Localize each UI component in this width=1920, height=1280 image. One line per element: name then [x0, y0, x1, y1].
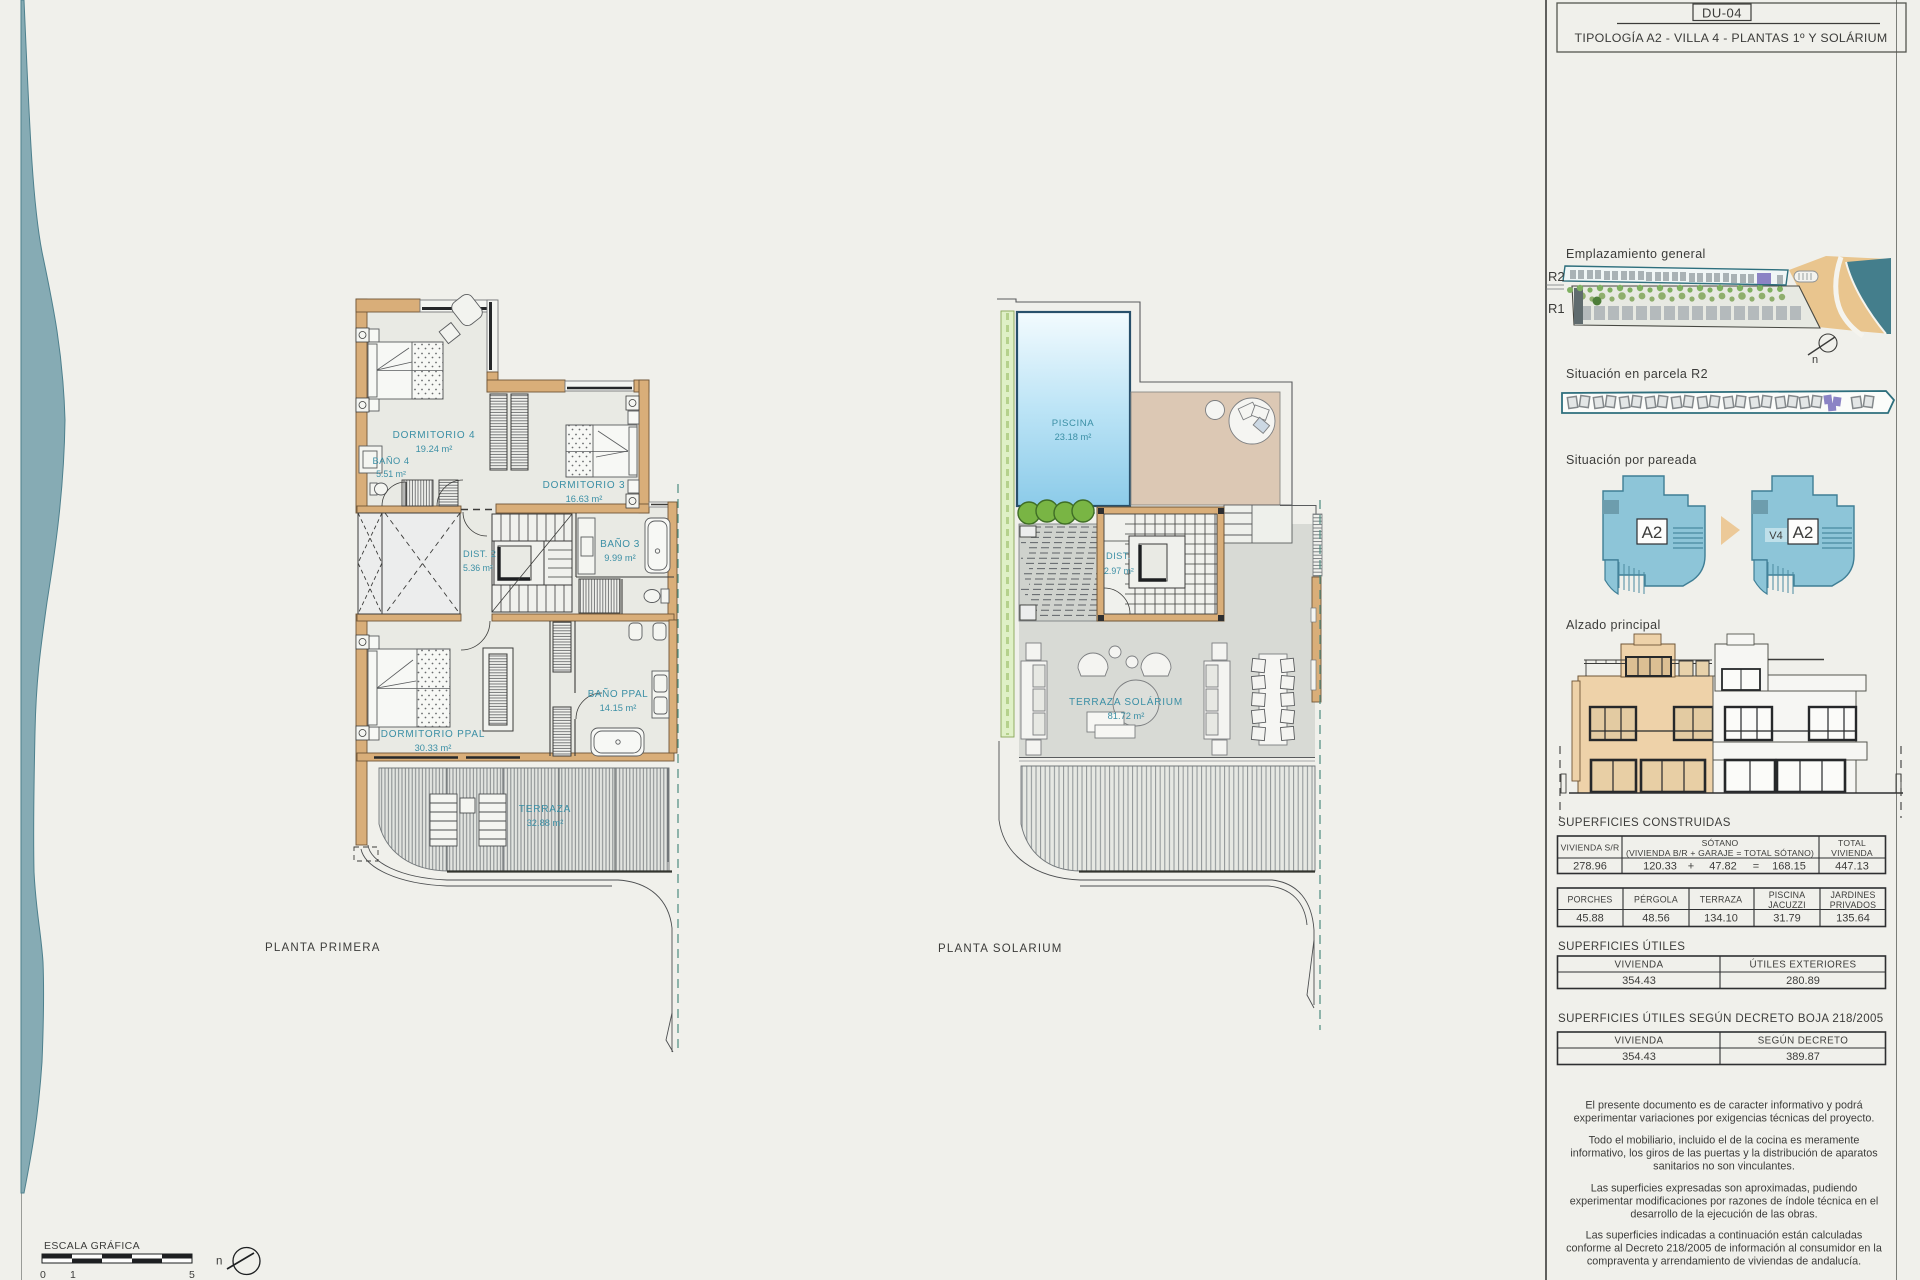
svg-text:5: 5	[189, 1269, 195, 1280]
svg-text:120.33: 120.33	[1643, 861, 1677, 873]
svg-text:PISCINA: PISCINA	[1052, 418, 1095, 429]
svg-text:16.63 m²: 16.63 m²	[566, 494, 603, 504]
svg-text:PLANTA SOLARIUM: PLANTA SOLARIUM	[938, 943, 1063, 955]
svg-text:SUPERFICIES ÚTILES SEGÚN DECRE: SUPERFICIES ÚTILES SEGÚN DECRETO BOJA 21…	[1558, 1012, 1884, 1025]
svg-text:5.51 m²: 5.51 m²	[376, 469, 406, 479]
svg-text:experimentar variaciones por e: experimentar variaciones por exigencias …	[1574, 1113, 1875, 1125]
svg-text:81.72 m²: 81.72 m²	[1108, 711, 1145, 721]
svg-text:DORMITORIO PPAL: DORMITORIO PPAL	[381, 729, 485, 740]
svg-text:48.56: 48.56	[1642, 913, 1670, 925]
svg-text:DU-04: DU-04	[1702, 6, 1742, 21]
svg-text:BAÑO PPAL: BAÑO PPAL	[588, 687, 648, 700]
svg-text:280.89: 280.89	[1786, 975, 1820, 987]
svg-text:BAÑO 4: BAÑO 4	[372, 456, 409, 466]
svg-text:Todo el mobiliario, incluido e: Todo el mobiliario, incluido el de la co…	[1589, 1135, 1860, 1147]
svg-text:Emplazamiento general: Emplazamiento general	[1566, 247, 1706, 261]
svg-text:45.88: 45.88	[1576, 913, 1604, 925]
svg-text:conforme al Decreto 218/2005 d: conforme al Decreto 218/2005 de informac…	[1566, 1243, 1882, 1255]
svg-text:experimentar modificaciones po: experimentar modificaciones por razones …	[1570, 1196, 1879, 1208]
svg-text:354.43: 354.43	[1622, 975, 1656, 987]
svg-text:+: +	[1688, 861, 1694, 873]
svg-text:PISCINA: PISCINA	[1769, 890, 1806, 900]
svg-text:TIPOLOGÍA A2 - VILLA 4 - PLANT: TIPOLOGÍA A2 - VILLA 4 - PLANTAS 1º Y SO…	[1574, 30, 1887, 45]
svg-text:447.13: 447.13	[1835, 861, 1869, 873]
svg-text:n: n	[216, 1256, 222, 1268]
svg-text:TERRAZA SOLÁRIUM: TERRAZA SOLÁRIUM	[1069, 695, 1183, 708]
svg-text:47.82: 47.82	[1709, 861, 1737, 873]
svg-text:n: n	[1812, 354, 1818, 366]
svg-text:2.97 m²: 2.97 m²	[1104, 566, 1134, 576]
svg-text:El presente documento es de ca: El presente documento es de caracter inf…	[1585, 1100, 1862, 1112]
svg-text:389.87: 389.87	[1786, 1051, 1820, 1063]
svg-text:19.24 m²: 19.24 m²	[416, 444, 453, 454]
svg-text:5.36 m²: 5.36 m²	[463, 563, 493, 573]
svg-text:(VIVIENDA B/R + GARAJE = TOTAL: (VIVIENDA B/R + GARAJE = TOTAL SÓTANO)	[1626, 848, 1814, 858]
svg-text:A2: A2	[1642, 523, 1663, 542]
svg-text:31.79: 31.79	[1773, 913, 1801, 925]
svg-text:Situación en parcela R2: Situación en parcela R2	[1566, 367, 1708, 381]
svg-text:23.18 m²: 23.18 m²	[1055, 432, 1092, 442]
svg-text:JACUZZI: JACUZZI	[1768, 900, 1806, 910]
svg-text:desarrollo de la ejecución de: desarrollo de la ejecución de las obras.	[1630, 1209, 1817, 1221]
svg-text:9.99 m²: 9.99 m²	[604, 553, 636, 563]
svg-text:BAÑO 3: BAÑO 3	[600, 537, 640, 550]
svg-text:ÚTILES EXTERIORES: ÚTILES EXTERIORES	[1750, 960, 1857, 971]
svg-text:R2: R2	[1548, 269, 1565, 284]
svg-text:278.96: 278.96	[1573, 861, 1607, 873]
svg-text:sanitarios no son vinculantes.: sanitarios no son vinculantes.	[1653, 1161, 1795, 1173]
svg-text:TOTAL: TOTAL	[1838, 838, 1866, 848]
svg-text:DORMITORIO 4: DORMITORIO 4	[393, 430, 476, 441]
svg-text:ESCALA GRÁFICA: ESCALA GRÁFICA	[44, 1239, 140, 1252]
svg-text:SUPERFICIES ÚTILES: SUPERFICIES ÚTILES	[1558, 940, 1685, 953]
svg-text:JARDINES: JARDINES	[1830, 890, 1875, 900]
svg-text:DIST. 2: DIST. 2	[463, 549, 496, 559]
svg-text:A2: A2	[1793, 523, 1814, 542]
svg-text:30.33 m²: 30.33 m²	[415, 743, 452, 753]
svg-text:354.43: 354.43	[1622, 1051, 1656, 1063]
svg-text:SUPERFICIES CONSTRUIDAS: SUPERFICIES CONSTRUIDAS	[1558, 817, 1731, 829]
svg-text:Alzado principal: Alzado principal	[1566, 618, 1661, 632]
svg-text:134.10: 134.10	[1704, 913, 1738, 925]
svg-text:DORMITORIO 3: DORMITORIO 3	[543, 480, 626, 491]
svg-text:compraventa y arrendamiento d: compraventa y arrendamiento de viviendas…	[1587, 1256, 1861, 1268]
svg-text:Situación por pareada: Situación por pareada	[1566, 453, 1697, 467]
svg-text:DIST.: DIST.	[1106, 551, 1131, 561]
svg-text:TERRAZA: TERRAZA	[1700, 895, 1742, 905]
svg-text:PLANTA PRIMERA: PLANTA PRIMERA	[265, 942, 381, 954]
svg-text:SEGÚN DECRETO: SEGÚN DECRETO	[1758, 1036, 1848, 1047]
svg-text:1: 1	[70, 1269, 76, 1280]
svg-text:Las superficies indicadas a co: Las superficies indicadas a continuación…	[1586, 1230, 1863, 1242]
svg-text:VIVIENDA: VIVIENDA	[1831, 848, 1873, 858]
svg-text:32.88 m²: 32.88 m²	[527, 818, 564, 828]
svg-text:VIVIENDA: VIVIENDA	[1615, 960, 1664, 971]
svg-text:168.15: 168.15	[1772, 861, 1806, 873]
svg-text:14.15 m²: 14.15 m²	[600, 703, 637, 713]
svg-text:VIVIENDA S/R: VIVIENDA S/R	[1561, 843, 1620, 853]
svg-text:SÓTANO: SÓTANO	[1702, 838, 1739, 848]
svg-text:PÉRGOLA: PÉRGOLA	[1634, 895, 1678, 905]
svg-text:informativo, los giros de las: informativo, los giros de las puertas y …	[1570, 1148, 1878, 1160]
svg-text:=: =	[1753, 861, 1759, 873]
svg-text:TERRAZA: TERRAZA	[519, 804, 571, 815]
svg-text:VIVIENDA: VIVIENDA	[1615, 1036, 1664, 1047]
svg-text:R1: R1	[1548, 301, 1565, 316]
svg-text:0: 0	[40, 1269, 46, 1280]
svg-text:Las superficies expresadas son: Las superficies expresadas son aproximad…	[1591, 1183, 1858, 1195]
svg-text:V4: V4	[1769, 530, 1782, 542]
svg-text:135.64: 135.64	[1836, 913, 1870, 925]
svg-text:PORCHES: PORCHES	[1568, 895, 1613, 905]
svg-text:PRIVADOS: PRIVADOS	[1830, 900, 1876, 910]
